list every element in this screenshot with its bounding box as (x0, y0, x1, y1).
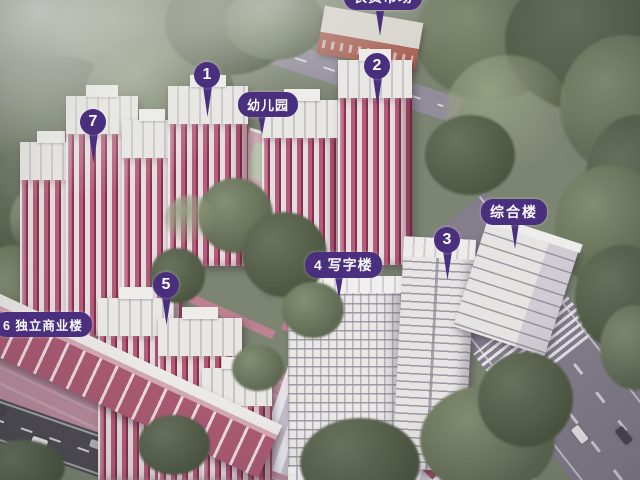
label-commercial: 6 独立商业楼 (0, 312, 92, 337)
marker-2-number: 2 (373, 57, 382, 74)
marker-2: 2 (364, 53, 390, 79)
car (571, 425, 589, 445)
tree-clump (255, 25, 330, 85)
marker-7: 7 (80, 109, 106, 135)
tree-clump (138, 415, 210, 475)
label-kindergarten: 幼儿园 (238, 92, 298, 117)
tree-clump (415, 25, 485, 85)
marker-1: 1 (194, 62, 220, 88)
marker-3-number: 3 (443, 231, 452, 248)
label-market: 农贸市场 (344, 0, 422, 10)
building-2-tower-b (338, 60, 412, 265)
car (615, 426, 633, 446)
marker-5-number: 5 (162, 276, 171, 293)
label-complex: 综合楼 (481, 199, 547, 225)
marker-1-number: 1 (203, 66, 212, 83)
tower-facade (338, 98, 412, 265)
tree-clump (232, 345, 284, 391)
tower-crown (158, 318, 242, 356)
tree-clump (203, 262, 275, 324)
tree-clump (165, 195, 215, 243)
marker-7-number: 7 (89, 113, 98, 130)
label-office: 4 写字楼 (305, 252, 382, 278)
marker-3: 3 (434, 227, 460, 253)
marker-5: 5 (153, 272, 179, 298)
tree-clump (520, 330, 580, 385)
tree-clump (282, 282, 344, 338)
tree-clump (425, 115, 515, 195)
site-plan-photo: 1 2 3 5 7 农贸市场 幼儿园 综合楼 4 写字楼 6 独立商业楼 (0, 0, 640, 480)
